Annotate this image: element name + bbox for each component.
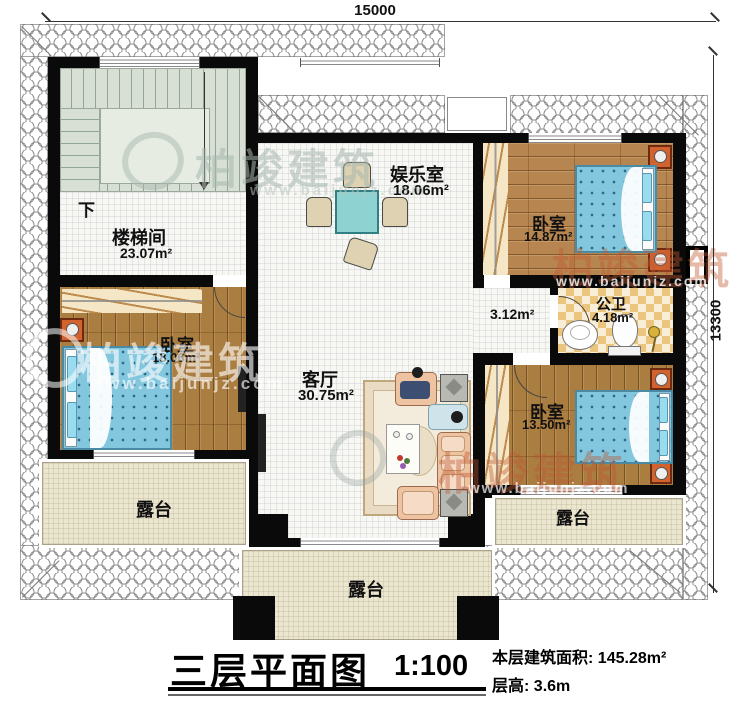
blanket-fold <box>621 167 643 251</box>
dimension-top-line <box>45 21 716 22</box>
sofa-cushion <box>441 436 465 452</box>
hallway-area: 3.12m² <box>490 306 534 322</box>
lamp-icon <box>654 150 667 163</box>
nightstand <box>650 462 672 484</box>
sofa-top <box>395 372 437 406</box>
pillow <box>659 397 668 423</box>
game-table <box>335 190 379 234</box>
table-flowers <box>397 455 403 461</box>
side-table <box>440 489 468 517</box>
eave-window-lines <box>300 58 440 67</box>
terrace-pillar-left <box>233 596 275 640</box>
left-bedroom-door-gap <box>213 275 246 287</box>
ne-bedroom-door-gap <box>484 275 510 288</box>
left-bedroom-area: 18.06m² <box>152 350 200 365</box>
dimension-right-label: 13300 <box>708 281 725 361</box>
left-bedroom-terrace-door <box>93 450 195 462</box>
pillow <box>67 402 77 438</box>
sofa-right <box>437 432 471 494</box>
lamp-icon <box>655 373 668 386</box>
pillow <box>659 430 668 456</box>
title-underline-thick <box>168 687 486 691</box>
table-cup <box>406 433 413 440</box>
ne-bedroom-top-window <box>528 133 622 143</box>
person-head <box>412 367 423 378</box>
bed-se <box>575 390 673 464</box>
chair-top <box>343 162 371 188</box>
stairwell-area: 23.07m² <box>120 245 172 261</box>
bed-ne <box>575 165 657 253</box>
stairwell-top-window <box>99 57 200 68</box>
ne-bedroom-area: 14.87m² <box>524 229 572 244</box>
dimension-top-label: 15000 <box>330 2 420 19</box>
pillow <box>642 211 652 241</box>
living-corner-pillar-left <box>250 514 288 550</box>
sofa-cushion <box>402 491 434 515</box>
se-bedroom-door-gap <box>513 353 550 365</box>
table-cup <box>393 431 400 438</box>
plan-scale: 1:100 <box>394 650 468 683</box>
stair-flight-side <box>60 108 100 192</box>
sofa-bottom <box>397 486 439 520</box>
terrace-se-label: 露台 <box>556 504 590 529</box>
floor-height-info: 层高: 3.6m <box>492 672 570 696</box>
roof-top-left-band <box>20 24 445 57</box>
chair-left <box>306 197 332 227</box>
bathroom-area: 4.18m² <box>592 310 633 325</box>
bathroom-door-gap <box>550 295 558 328</box>
roof-mid-top-band <box>258 95 445 133</box>
side-table <box>440 374 468 402</box>
side-table-decor <box>446 494 463 511</box>
roof-dormer <box>447 97 507 131</box>
floor-plan-canvas: 下 楼梯间 23.07m² 娱乐室 18.06m² 卧室 14.87m² 公卫 … <box>0 0 750 705</box>
living-area: 30.75m² <box>298 387 354 404</box>
title-underline-thin <box>168 694 486 696</box>
entertainment-area: 18.06m² <box>393 182 449 199</box>
chaise <box>428 404 468 430</box>
person-head <box>451 411 463 423</box>
side-table-decor <box>446 379 463 396</box>
living-corner-pillar-right <box>448 514 485 550</box>
stair-direction-arrow <box>199 182 209 190</box>
chair-right <box>382 197 408 227</box>
toilet-tank <box>608 346 641 356</box>
stair-direction-line <box>204 72 205 182</box>
terrace-sw-label: 露台 <box>136 496 172 522</box>
sofa-cushion <box>441 455 465 471</box>
chimney <box>686 246 708 284</box>
lamp-icon <box>654 253 667 266</box>
sofa-cushion <box>441 474 465 490</box>
se-bedroom-closet <box>485 365 509 485</box>
person <box>400 381 430 399</box>
roof-right-band <box>683 95 708 600</box>
floor-area-info: 本层建筑面积: 145.28m² <box>492 644 666 668</box>
floor-area-label: 本层建筑面积: <box>492 650 593 667</box>
coffee-table <box>386 424 420 474</box>
pillow <box>642 173 652 203</box>
stair-down-label: 下 <box>78 196 95 221</box>
tv-panel <box>238 366 246 412</box>
left-bedroom-closet <box>62 289 202 313</box>
tv-panel-living <box>258 414 266 472</box>
sink-basin <box>570 325 590 340</box>
roof-top-right-band <box>510 95 683 135</box>
se-bedroom-area: 13.50m² <box>522 417 570 432</box>
blanket-fold <box>629 392 649 462</box>
floor-area-value: 145.28m² <box>598 650 667 667</box>
se-bedroom-terrace-door <box>520 485 623 498</box>
terrace-pillar-right <box>457 596 499 640</box>
blanket-fold <box>90 348 112 448</box>
floor-height-label: 层高: <box>492 678 529 695</box>
floor-height-value: 3.6m <box>534 678 570 695</box>
nightstand <box>650 368 672 390</box>
living-terrace-sliding-door <box>300 538 440 550</box>
terrace-s-label: 露台 <box>348 576 384 602</box>
ne-bedroom-closet <box>483 143 508 275</box>
lamp-icon <box>655 467 668 480</box>
